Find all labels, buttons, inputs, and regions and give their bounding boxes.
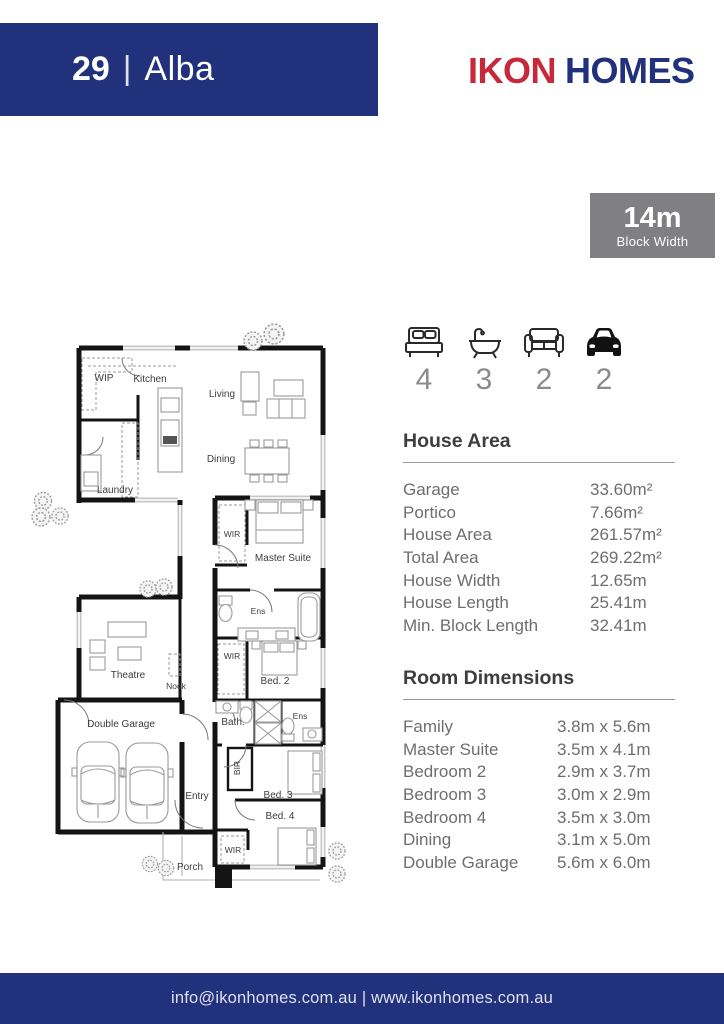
row-label: Double Garage [403, 853, 518, 872]
feature-bathrooms: 3 [454, 326, 514, 397]
room-label-bed4: Bed. 4 [266, 811, 295, 822]
room-label-theatre: Theatre [111, 670, 146, 681]
row-value: 3.5m x 3.0m [557, 807, 651, 830]
row-label: Bedroom 4 [403, 808, 486, 827]
room-label-wir-master: WIR [224, 529, 241, 539]
house-area-row: House Width12.65m [403, 570, 675, 593]
room-label-porch: Porch [177, 862, 203, 873]
row-label: Family [403, 717, 453, 736]
row-value: 3.8m x 5.6m [557, 716, 651, 739]
row-value: 2.9m x 3.7m [557, 761, 651, 784]
row-value: 25.41m [590, 592, 647, 615]
house-area-row: Total Area269.22m² [403, 547, 675, 570]
row-label: Master Suite [403, 740, 498, 759]
room-label-bed2: Bed. 2 [261, 676, 290, 687]
feature-living-areas: 2 [514, 326, 574, 397]
row-label: Min. Block Length [403, 616, 538, 635]
room-dimension-row: Double Garage5.6m x 6.0m [403, 852, 675, 875]
feature-bedrooms: 4 [394, 326, 454, 397]
room-label-nook: Nook [166, 681, 187, 691]
garage-count: 2 [596, 363, 613, 397]
sofa-icon [523, 326, 565, 360]
room-dimension-row: Bedroom 43.5m x 3.0m [403, 807, 675, 830]
feature-garage: 2 [574, 326, 634, 397]
room-label-ens-master: Ens [251, 606, 266, 616]
row-value: 5.6m x 6.0m [557, 852, 651, 875]
room-dimensions-title: Room Dimensions [403, 667, 675, 690]
house-area-row: House Length25.41m [403, 592, 675, 615]
footer-contact: info@ikonhomes.com.au | www.ikonhomes.co… [171, 989, 553, 1008]
room-dimension-row: Master Suite3.5m x 4.1m [403, 739, 675, 762]
porch-pillar [215, 868, 232, 888]
divider [403, 699, 675, 700]
row-value: 269.22m² [590, 547, 662, 570]
room-dimension-row: Family3.8m x 5.6m [403, 716, 675, 739]
bedroom-count: 4 [416, 363, 433, 397]
row-value: 33.60m² [590, 479, 652, 502]
bed-icon [403, 326, 445, 360]
row-label: Portico [403, 503, 456, 522]
car-outline [121, 743, 173, 823]
divider [403, 462, 675, 463]
footer-bar: info@ikonhomes.com.au | www.ikonhomes.co… [0, 973, 724, 1024]
car-icon [583, 326, 625, 360]
house-area-panel: House Area Garage33.60m² Portico7.66m² H… [403, 430, 675, 638]
row-label: House Width [403, 571, 500, 590]
room-label-wip: WIP [95, 373, 114, 384]
row-value: 261.57m² [590, 524, 662, 547]
room-label-wir-bed4: WIR [225, 845, 242, 855]
feature-summary: 4 3 [394, 326, 634, 397]
room-dimension-row: Dining3.1m x 5.0m [403, 829, 675, 852]
room-label-ens2: Ens [293, 711, 308, 721]
room-label-bir: BIR [232, 761, 242, 775]
bath-icon [464, 326, 504, 360]
living-count: 2 [536, 363, 553, 397]
row-label: Total Area [403, 548, 479, 567]
room-label-wir-bed2: WIR [224, 651, 241, 661]
row-value: 3.5m x 4.1m [557, 739, 651, 762]
row-label: Bedroom 3 [403, 785, 486, 804]
row-value: 3.0m x 2.9m [557, 784, 651, 807]
room-label-bed3: Bed. 3 [264, 790, 293, 801]
row-label: House Area [403, 525, 492, 544]
room-label-entry: Entry [185, 791, 208, 802]
row-value: 3.1m x 5.0m [557, 829, 651, 852]
brochure-page: 29 | Alba IKONHOMES 14m Block Width [0, 0, 724, 1024]
row-label: Dining [403, 830, 451, 849]
room-dimension-row: Bedroom 22.9m x 3.7m [403, 761, 675, 784]
room-label-bath: Bath. [221, 717, 244, 728]
room-dimensions-panel: Room Dimensions Family3.8m x 5.6m Master… [403, 667, 675, 875]
bathroom-count: 3 [476, 363, 493, 397]
house-area-row: Min. Block Length32.41m [403, 615, 675, 638]
row-value: 32.41m [590, 615, 647, 638]
house-area-row: Portico7.66m² [403, 502, 675, 525]
row-value: 12.65m [590, 570, 647, 593]
row-label: Bedroom 2 [403, 762, 486, 781]
row-label: House Length [403, 593, 509, 612]
row-label: Garage [403, 480, 460, 499]
house-area-row: Garage33.60m² [403, 479, 675, 502]
house-area-row: House Area261.57m² [403, 524, 675, 547]
room-dimension-row: Bedroom 33.0m x 2.9m [403, 784, 675, 807]
house-area-title: House Area [403, 430, 675, 453]
car-outline [72, 742, 124, 822]
room-label-dining: Dining [207, 454, 235, 465]
room-label-living: Living [209, 389, 235, 400]
room-label-double-garage: Double Garage [87, 719, 155, 730]
room-label-master-suite: Master Suite [255, 553, 312, 564]
row-value: 7.66m² [590, 502, 643, 525]
room-label-laundry: Laundry [97, 485, 133, 496]
room-label-kitchen: Kitchen [133, 374, 166, 385]
